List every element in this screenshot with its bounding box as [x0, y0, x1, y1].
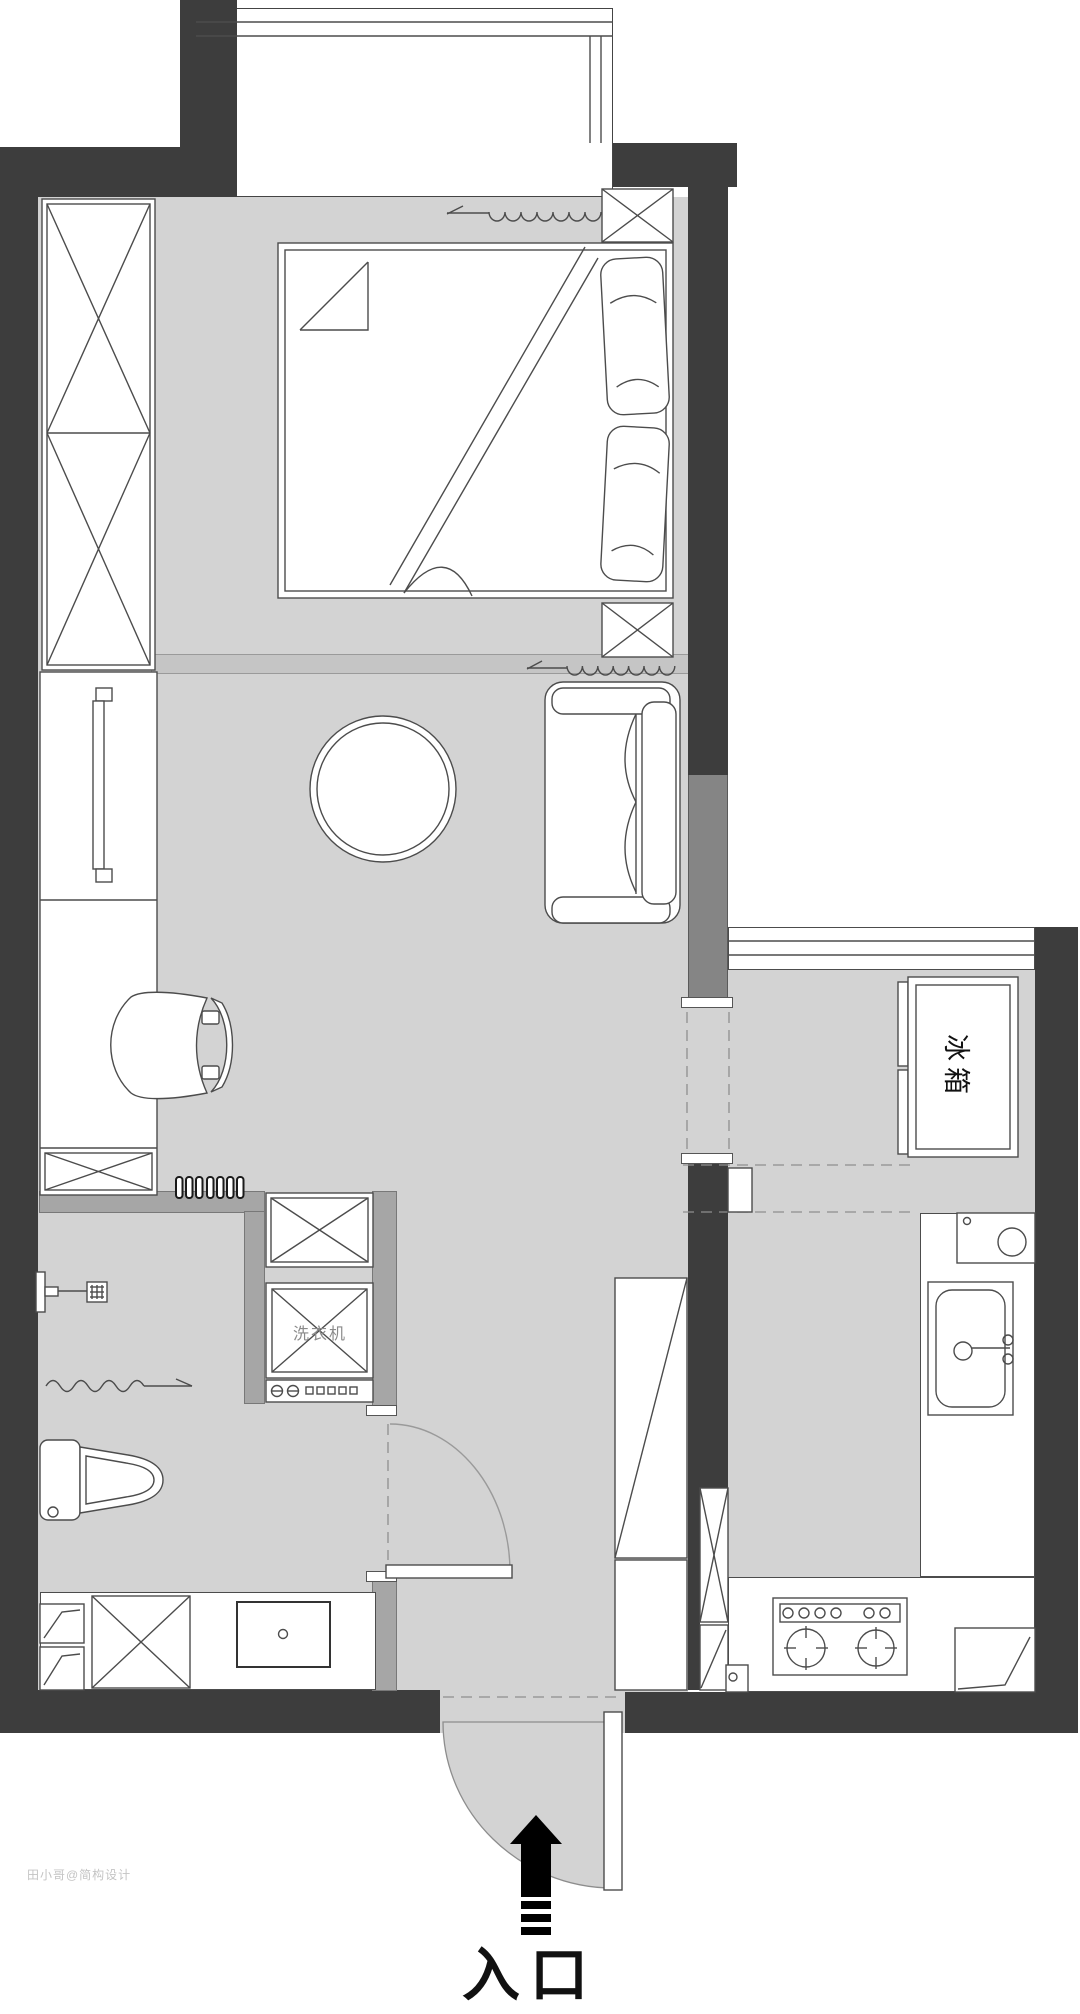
kitchen-window-lines	[728, 941, 1035, 955]
bathroom-door	[386, 1424, 512, 1578]
kitchen-corner-unit	[957, 1213, 1035, 1263]
vanity-cabinet-small-2	[40, 1647, 84, 1690]
kitchen-doorway-dashes	[687, 1012, 729, 1156]
kitchen-sink	[928, 1282, 1013, 1415]
desk-chair	[111, 992, 233, 1098]
nightstand-bottom	[602, 603, 673, 657]
water-flow-arrow	[46, 1379, 192, 1392]
vanity-cabinet-x	[92, 1596, 190, 1688]
curtain-bedroom	[447, 206, 601, 221]
kitchen-tall-cabinet-x	[700, 1488, 728, 1622]
kitchen-overhead-cabinet-dashes	[683, 1165, 917, 1212]
entrance-label: 入口	[430, 1928, 630, 2012]
pillow-top	[600, 256, 670, 415]
hall-cabinet-tall	[615, 1278, 687, 1558]
kitchen-cabinet-small	[700, 1625, 728, 1690]
nightstand-top	[602, 189, 673, 242]
sofa	[545, 682, 680, 923]
linework-overlay	[0, 0, 1080, 2014]
wardrobe	[42, 199, 155, 670]
curtain-living	[527, 661, 675, 675]
floor-plan: 冰箱 洗衣机 入口 田小哥@简构设计	[0, 0, 1080, 2014]
pillow-bottom	[600, 425, 670, 582]
stove	[773, 1598, 907, 1675]
washer-control-panel	[266, 1380, 373, 1402]
shower-head	[36, 1272, 87, 1312]
kitchen-floor-drain	[726, 1665, 748, 1692]
balcony-window-lines	[196, 22, 613, 143]
vanity-cabinet-small-1	[40, 1604, 84, 1643]
radiator	[176, 1177, 244, 1198]
floor-drain	[87, 1282, 107, 1302]
hall-cabinet-low	[615, 1560, 687, 1690]
toilet	[40, 1440, 163, 1520]
fridge-label: 冰箱	[948, 1012, 978, 1122]
washing-machine-label: 洗衣机	[276, 1320, 364, 1344]
round-table	[310, 716, 456, 862]
corner-cabinet	[955, 1628, 1035, 1692]
watermark: 田小哥@简构设计	[27, 1866, 131, 1883]
vanity-basin	[237, 1602, 330, 1667]
washer-overhead-cabinet	[266, 1193, 373, 1267]
